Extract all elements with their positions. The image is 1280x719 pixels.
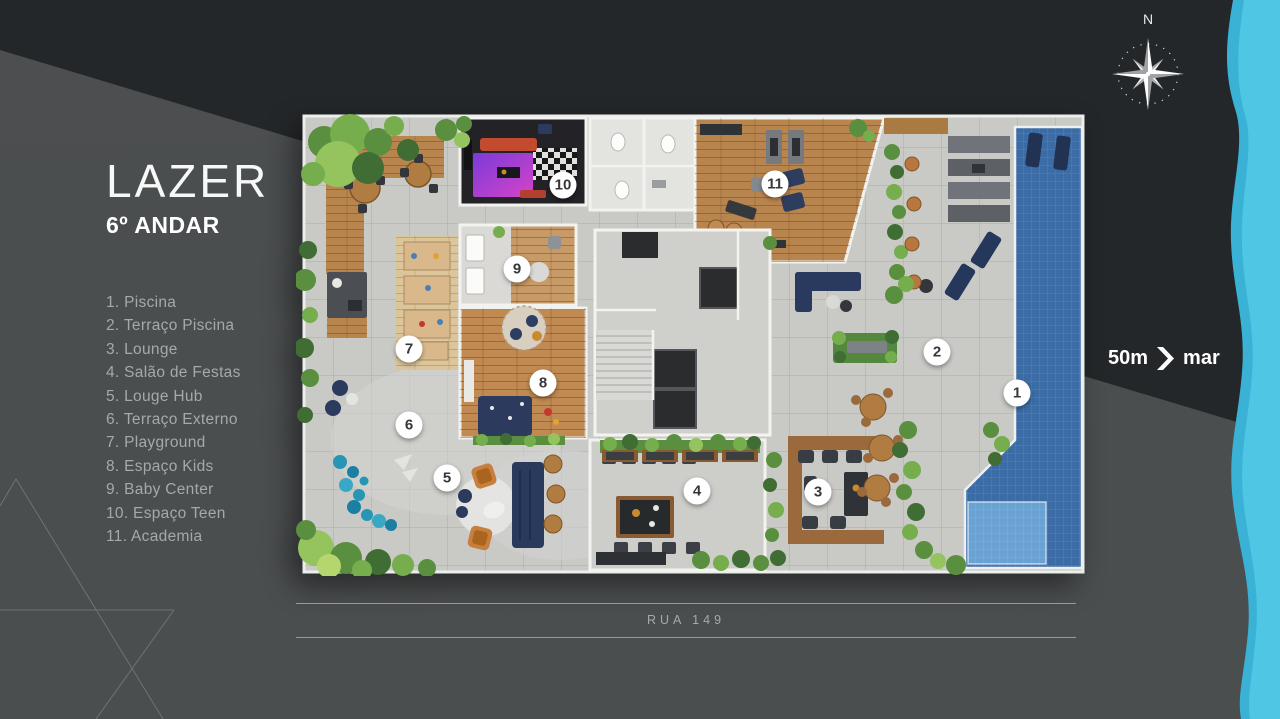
sidebar: LAZER 6º ANDAR 1. Piscina2. Terraço Pisc… — [106, 158, 306, 548]
legend-item: 4. Salão de Festas — [106, 361, 306, 384]
legend-item: 1. Piscina — [106, 291, 306, 314]
chevron-right-icon — [1157, 347, 1174, 370]
plan-marker-1: 1 — [1004, 380, 1031, 407]
plan-marker-3: 3 — [805, 479, 832, 506]
amenities-legend: 1. Piscina2. Terraço Piscina3. Lounge4. … — [106, 291, 306, 548]
presentation-slide: { "slide": { "title": "LAZER", "subtitle… — [0, 0, 1280, 719]
page-title: LAZER — [106, 158, 306, 204]
plan-marker-4: 4 — [684, 478, 711, 505]
plan-marker-2: 2 — [924, 339, 951, 366]
street-band: RUA 149 — [296, 603, 1076, 638]
legend-item: 8. Espaço Kids — [106, 455, 306, 478]
compass-north-label: N — [1143, 11, 1153, 27]
plan-marker-5: 5 — [434, 465, 461, 492]
floor-plan: 1234567891011 — [296, 110, 1088, 576]
legend-item: 11. Academia — [106, 525, 306, 548]
plan-marker-8: 8 — [530, 370, 557, 397]
plan-marker-9: 9 — [504, 256, 531, 283]
compass-rose: N — [1093, 8, 1203, 130]
distance-value: 50m — [1108, 347, 1148, 370]
plan-marker-7: 7 — [396, 336, 423, 363]
distance-target: mar — [1183, 347, 1220, 370]
distance-to-sea: 50m mar — [1108, 341, 1220, 375]
room-espaco-kids — [460, 306, 586, 438]
legend-item: 2. Terraço Piscina — [106, 314, 306, 337]
legend-item: 10. Espaço Teen — [106, 502, 306, 525]
sea-stripe — [1210, 0, 1280, 719]
plan-marker-11: 11 — [762, 171, 789, 198]
street-label: RUA 149 — [647, 613, 725, 627]
plan-marker-6: 6 — [396, 412, 423, 439]
page-subtitle: 6º ANDAR — [106, 212, 306, 239]
legend-item: 3. Lounge — [106, 338, 306, 361]
legend-item: 7. Playground — [106, 431, 306, 454]
building-core — [595, 230, 777, 435]
restrooms — [590, 118, 695, 210]
legend-item: 6. Terraço Externo — [106, 408, 306, 431]
legend-item: 9. Baby Center — [106, 478, 306, 501]
plan-marker-10: 10 — [550, 172, 577, 199]
legend-item: 5. Louge Hub — [106, 385, 306, 408]
